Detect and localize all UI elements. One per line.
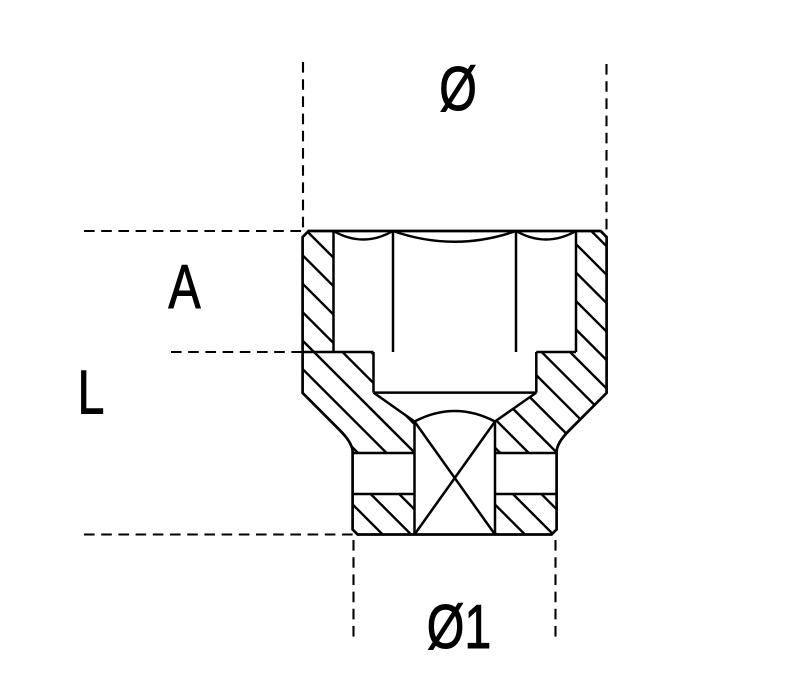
svg-text:Ø1: Ø1 (427, 592, 491, 661)
svg-text:L: L (78, 358, 105, 427)
svg-text:Ø: Ø (439, 54, 477, 123)
svg-text:A: A (168, 252, 200, 321)
